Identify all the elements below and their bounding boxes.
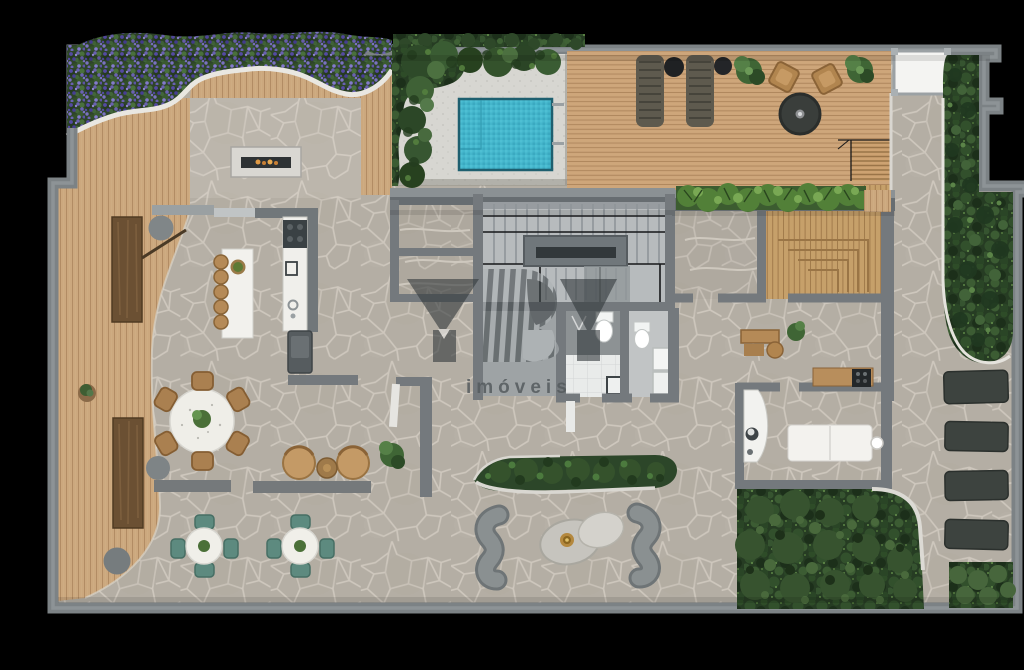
svg-text:imóveis: imóveis [466,377,572,398]
